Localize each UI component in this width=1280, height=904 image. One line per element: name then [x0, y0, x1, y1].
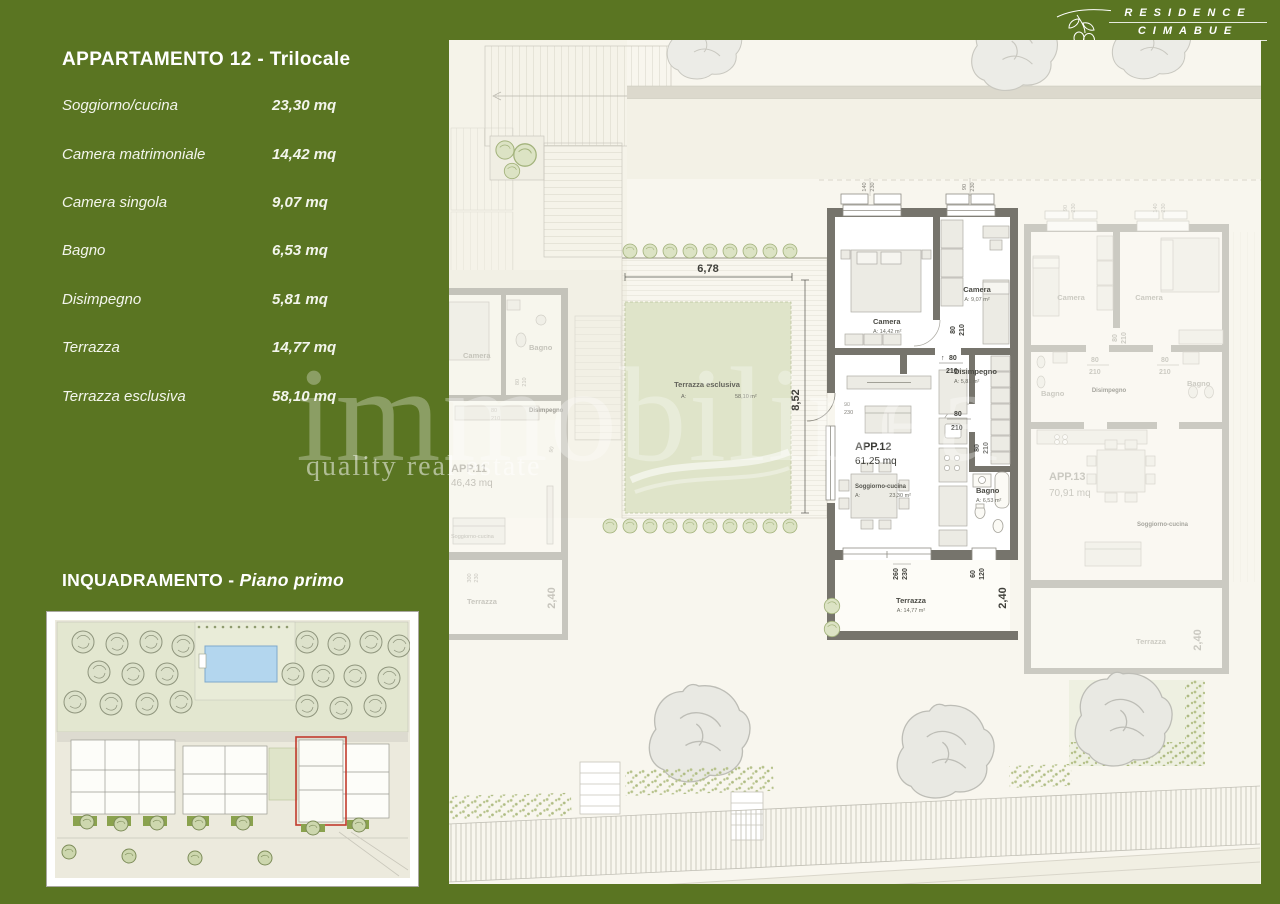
svg-text:80: 80 — [1161, 357, 1169, 364]
svg-text:80: 80 — [954, 411, 962, 418]
brochure-page: { "brand": { "line1": "RESIDENCE", "line… — [0, 0, 1280, 904]
app13-name: APP.13 — [1049, 471, 1086, 483]
svg-text:230: 230 — [870, 182, 876, 191]
svg-text:210: 210 — [959, 324, 966, 336]
site-plan-minimap — [46, 611, 419, 887]
app12-camera1-area: A: 14,42 m² — [873, 329, 902, 335]
room-label: Camera singola — [62, 194, 167, 211]
terrazza-esclusiva: 6,78 Terrazza esclusiva A: 58,10 m² 8,52 — [603, 244, 827, 533]
svg-text:90: 90 — [844, 402, 850, 408]
svg-text:80: 80 — [491, 408, 497, 414]
app13-disimpegno-label: Disimpegno — [1092, 388, 1127, 394]
app11-bagno-label: Bagno — [529, 343, 553, 352]
app11-camera-label: Camera — [463, 351, 491, 360]
svg-text:230: 230 — [844, 410, 853, 416]
svg-text:120: 120 — [979, 568, 986, 580]
floor-plan-panel: 6,78 Terrazza esclusiva A: 58,10 m² 8,52 — [449, 40, 1261, 884]
terrazza-esclusiva-label: Terrazza esclusiva — [674, 380, 741, 389]
app13-unit: Camera Camera Bagno Disimpegno Bagno APP… — [1024, 203, 1261, 674]
svg-text:2,40: 2,40 — [997, 587, 1009, 608]
top-road — [627, 86, 1261, 180]
page-title: APPARTAMENTO 12 - Trilocale — [62, 49, 350, 71]
app12-soggiorno-label: Soggiorno-cucina — [855, 484, 907, 490]
app13-soggiorno-label: Soggiorno-cucina — [1137, 522, 1189, 528]
app13-bagno2-label: Bagno — [1187, 379, 1211, 388]
app12-disimpegno-area: A: 5,81 m² — [954, 379, 980, 385]
svg-text:230: 230 — [970, 182, 976, 191]
room-value: 14,77 mq — [272, 339, 336, 356]
svg-text:140: 140 — [862, 182, 868, 191]
app12-area: 61,25 mq — [855, 456, 897, 467]
svg-text:210: 210 — [951, 425, 963, 432]
app11-soggiorno-label: Soggiorno-cucina — [451, 534, 495, 540]
app12-bagno-area: A: 6,53 m² — [976, 498, 1002, 504]
dim-678: 6,78 — [697, 263, 718, 275]
dim-852: 8,52 — [790, 389, 802, 410]
app13-terrazza-label: Terrazza — [1136, 637, 1167, 646]
app11-stair — [575, 316, 621, 440]
svg-text:80: 80 — [950, 326, 957, 334]
pool — [199, 646, 277, 682]
minimap-buildings — [71, 740, 389, 822]
brand-divider — [1109, 22, 1267, 23]
app12-camera2-label: Camera — [963, 285, 991, 294]
site-plan-svg — [55, 620, 410, 878]
svg-text:80: 80 — [1112, 334, 1119, 342]
svg-text:2,40: 2,40 — [1192, 629, 1204, 650]
terrazza-esclusiva-a: A: — [681, 394, 687, 400]
app11-name: APP.11 — [451, 463, 487, 475]
svg-text:80: 80 — [949, 355, 957, 362]
inquadramento-heading: INQUADRAMENTO - Piano primo — [62, 570, 344, 591]
app12-unit: Camera A: 14,42 m² Camera A: 9,07 m² Dis… — [807, 178, 1018, 640]
inquadramento-separator: - — [223, 570, 239, 590]
svg-text:↑: ↑ — [941, 355, 945, 362]
svg-text:230: 230 — [1071, 203, 1077, 212]
room-label: Bagno — [62, 242, 105, 259]
app13-camera1-label: Camera — [1057, 293, 1085, 302]
svg-text:80: 80 — [974, 444, 981, 452]
svg-text:A:: A: — [855, 493, 861, 499]
brand-line1: RESIDENCE — [1109, 7, 1267, 20]
app12-camera2-area: A: 9,07 m² — [964, 297, 990, 303]
room-label: Terrazza esclusiva — [62, 388, 186, 405]
room-label: Disimpegno — [62, 291, 141, 308]
floor-plan-svg: 6,78 Terrazza esclusiva A: 58,10 m² 8,52 — [449, 40, 1261, 884]
svg-text:210: 210 — [1089, 369, 1101, 376]
svg-text:210: 210 — [522, 377, 528, 386]
app12-disimpegno-label: Disimpegno — [954, 367, 997, 376]
room-value: 9,07 mq — [272, 194, 328, 211]
app12-name: APP.12 — [855, 441, 892, 453]
room-label: Terrazza — [62, 339, 120, 356]
app12-camera1-label: Camera — [873, 317, 901, 326]
app11-terrazza-label: Terrazza — [467, 597, 498, 606]
svg-text:210: 210 — [1159, 369, 1171, 376]
svg-text:80: 80 — [515, 379, 521, 385]
room-label: Camera matrimoniale — [62, 146, 205, 163]
svg-text:210: 210 — [983, 442, 990, 454]
app11-disimpegno-label: Disimpegno — [529, 408, 564, 414]
room-label: Soggiorno/cucina — [62, 97, 178, 114]
room-value: 14,42 mq — [272, 146, 336, 163]
brand-line2: CIMABUE — [1109, 25, 1267, 38]
svg-text:60: 60 — [970, 570, 977, 578]
svg-text:80: 80 — [1091, 357, 1099, 364]
svg-text:300: 300 — [467, 573, 473, 582]
app12-terrazza-label: Terrazza — [896, 596, 927, 605]
app13-bagno1-label: Bagno — [1041, 389, 1065, 398]
room-value: 5,81 mq — [272, 291, 328, 308]
svg-text:230: 230 — [474, 573, 480, 582]
svg-text:210: 210 — [1121, 332, 1128, 344]
app13-camera2-label: Camera — [1135, 293, 1163, 302]
app12-soggiorno-area: 23,30 m² — [889, 493, 911, 499]
room-value: 23,30 mq — [272, 97, 336, 114]
svg-text:2,40: 2,40 — [546, 587, 558, 608]
room-value: 6,53 mq — [272, 242, 328, 259]
svg-text:210: 210 — [491, 416, 500, 422]
room-value: 58,10 mq — [272, 388, 336, 405]
app11-area: 46,43 mq — [451, 478, 493, 489]
svg-text:230: 230 — [1161, 203, 1167, 212]
svg-text:90: 90 — [962, 184, 968, 190]
app12-bagno-label: Bagno — [976, 486, 1000, 495]
svg-text:140: 140 — [1153, 203, 1159, 212]
svg-text:90: 90 — [1063, 205, 1069, 211]
app12-kitchen — [939, 370, 967, 546]
app12-terrazza-area: A: 14,77 m² — [897, 608, 926, 614]
app13-area: 70,91 mq — [1049, 488, 1091, 499]
terrazza-esclusiva-area: 58,10 m² — [735, 394, 757, 400]
bush-row-top — [623, 244, 797, 258]
svg-text:210: 210 — [946, 368, 958, 375]
svg-text:230: 230 — [902, 568, 909, 580]
brand-logo: RESIDENCE CIMABUE — [1109, 7, 1267, 43]
inquadramento-title: INQUADRAMENTO — [62, 570, 223, 590]
inquadramento-subtitle: Piano primo — [240, 570, 344, 590]
svg-text:260: 260 — [893, 568, 900, 580]
